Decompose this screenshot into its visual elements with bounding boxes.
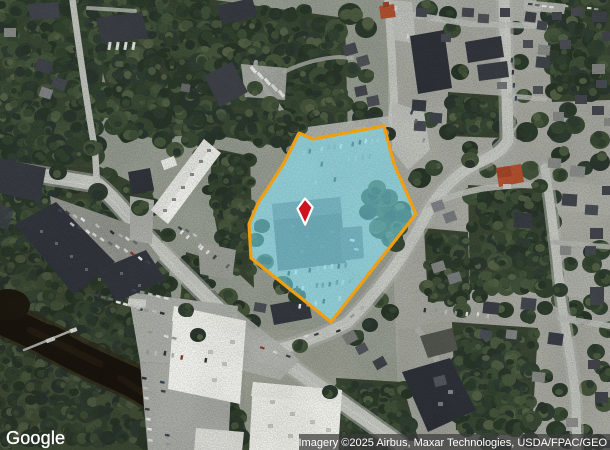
svg-text:Google: Google [6, 428, 65, 448]
svg-text:Imagery ©2025 Airbus, Maxar Te: Imagery ©2025 Airbus, Maxar Technologies… [299, 437, 608, 449]
